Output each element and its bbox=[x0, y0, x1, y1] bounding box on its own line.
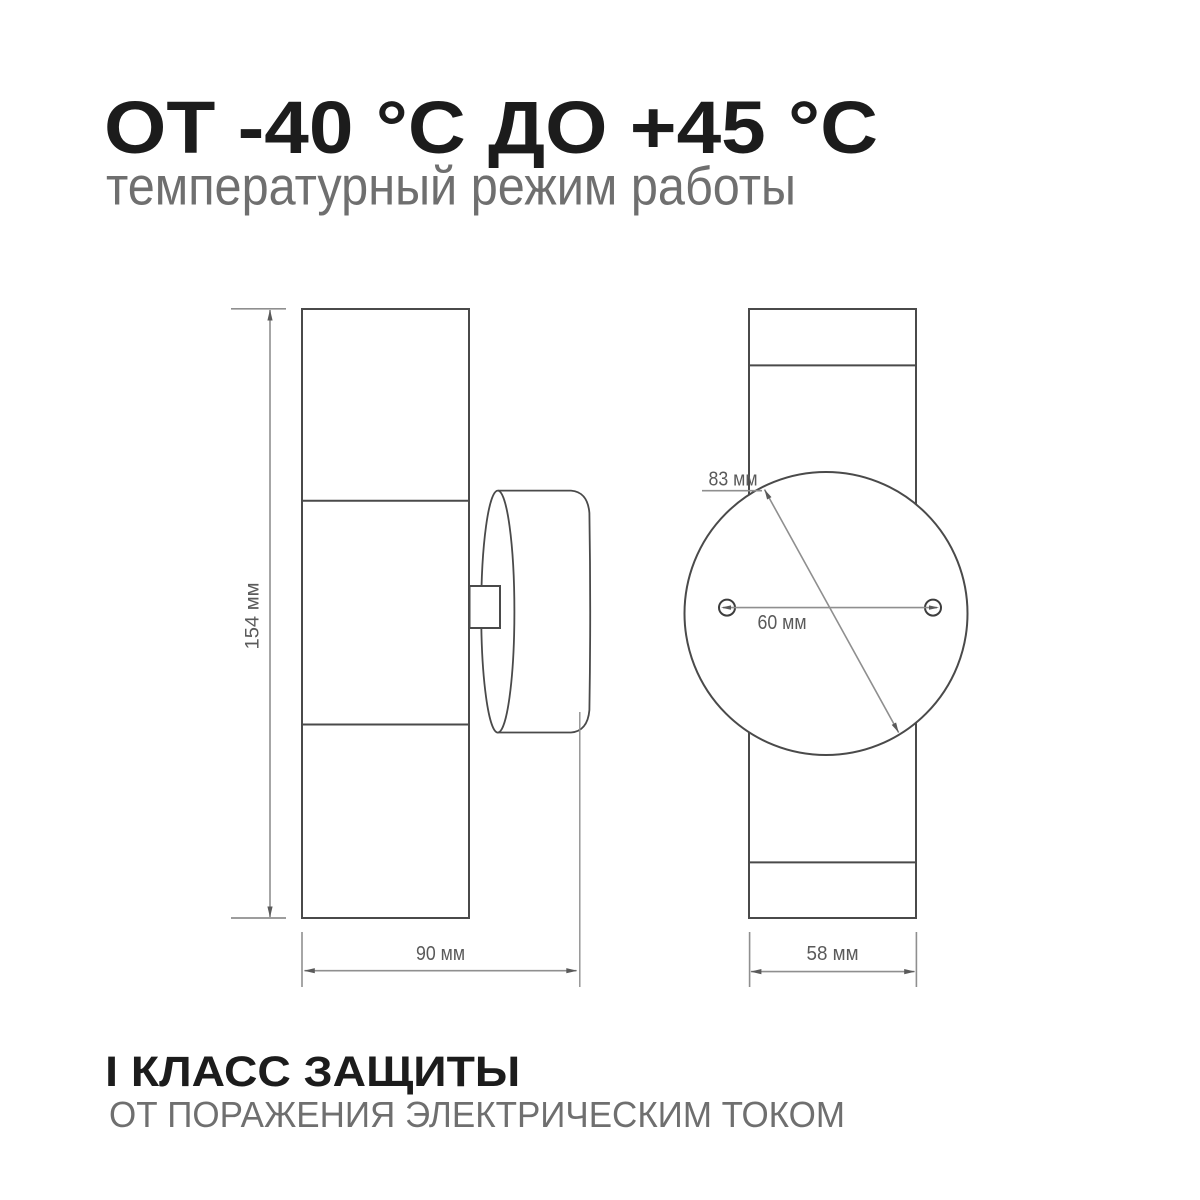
svg-text:90 мм: 90 мм bbox=[416, 942, 465, 965]
svg-text:ОТ ПОРАЖЕНИЯ ЭЛЕКТРИЧЕСКИМ ТОК: ОТ ПОРАЖЕНИЯ ЭЛЕКТРИЧЕСКИМ ТОКОМ bbox=[109, 1094, 845, 1135]
svg-text:154 мм: 154 мм bbox=[243, 583, 264, 650]
svg-text:58 мм: 58 мм bbox=[807, 942, 859, 965]
svg-text:I КЛАСС ЗАЩИТЫ: I КЛАСС ЗАЩИТЫ bbox=[105, 1048, 520, 1096]
svg-text:температурный режим работы: температурный режим работы bbox=[106, 157, 796, 217]
svg-text:60 мм: 60 мм bbox=[758, 611, 807, 634]
svg-text:83 мм: 83 мм bbox=[709, 467, 758, 490]
